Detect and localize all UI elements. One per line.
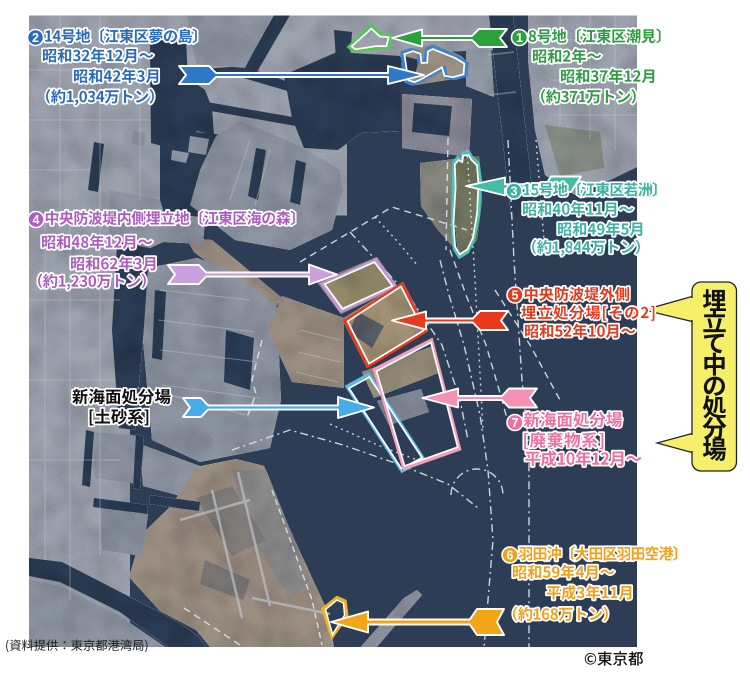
svg-text:7: 7 bbox=[512, 416, 519, 430]
svg-text:1: 1 bbox=[516, 31, 523, 45]
svg-text:2: 2 bbox=[32, 31, 39, 45]
svg-text:6: 6 bbox=[507, 549, 514, 563]
svg-text:3: 3 bbox=[511, 185, 518, 199]
svg-text:5: 5 bbox=[512, 289, 519, 303]
svg-text:4: 4 bbox=[33, 213, 40, 227]
